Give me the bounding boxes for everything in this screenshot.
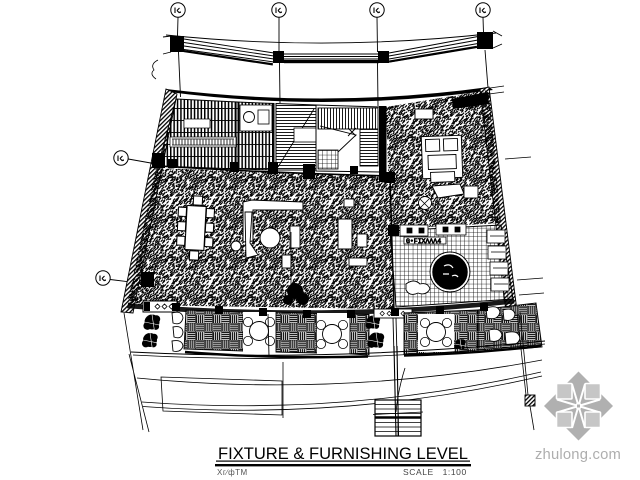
svg-text:SCALE 1:100: SCALE 1:100 bbox=[403, 467, 467, 477]
svg-text:G•FIXΛΛΛ4: G•FIXΛΛΛ4 bbox=[406, 238, 441, 245]
svg-text:FIXTURE & FURNISHING LEVEL: FIXTURE & FURNISHING LEVEL bbox=[218, 444, 468, 463]
svg-text:zhulong.com: zhulong.com bbox=[535, 447, 621, 463]
svg-text:Xг∕фТM: Xг∕фТM bbox=[217, 468, 248, 477]
